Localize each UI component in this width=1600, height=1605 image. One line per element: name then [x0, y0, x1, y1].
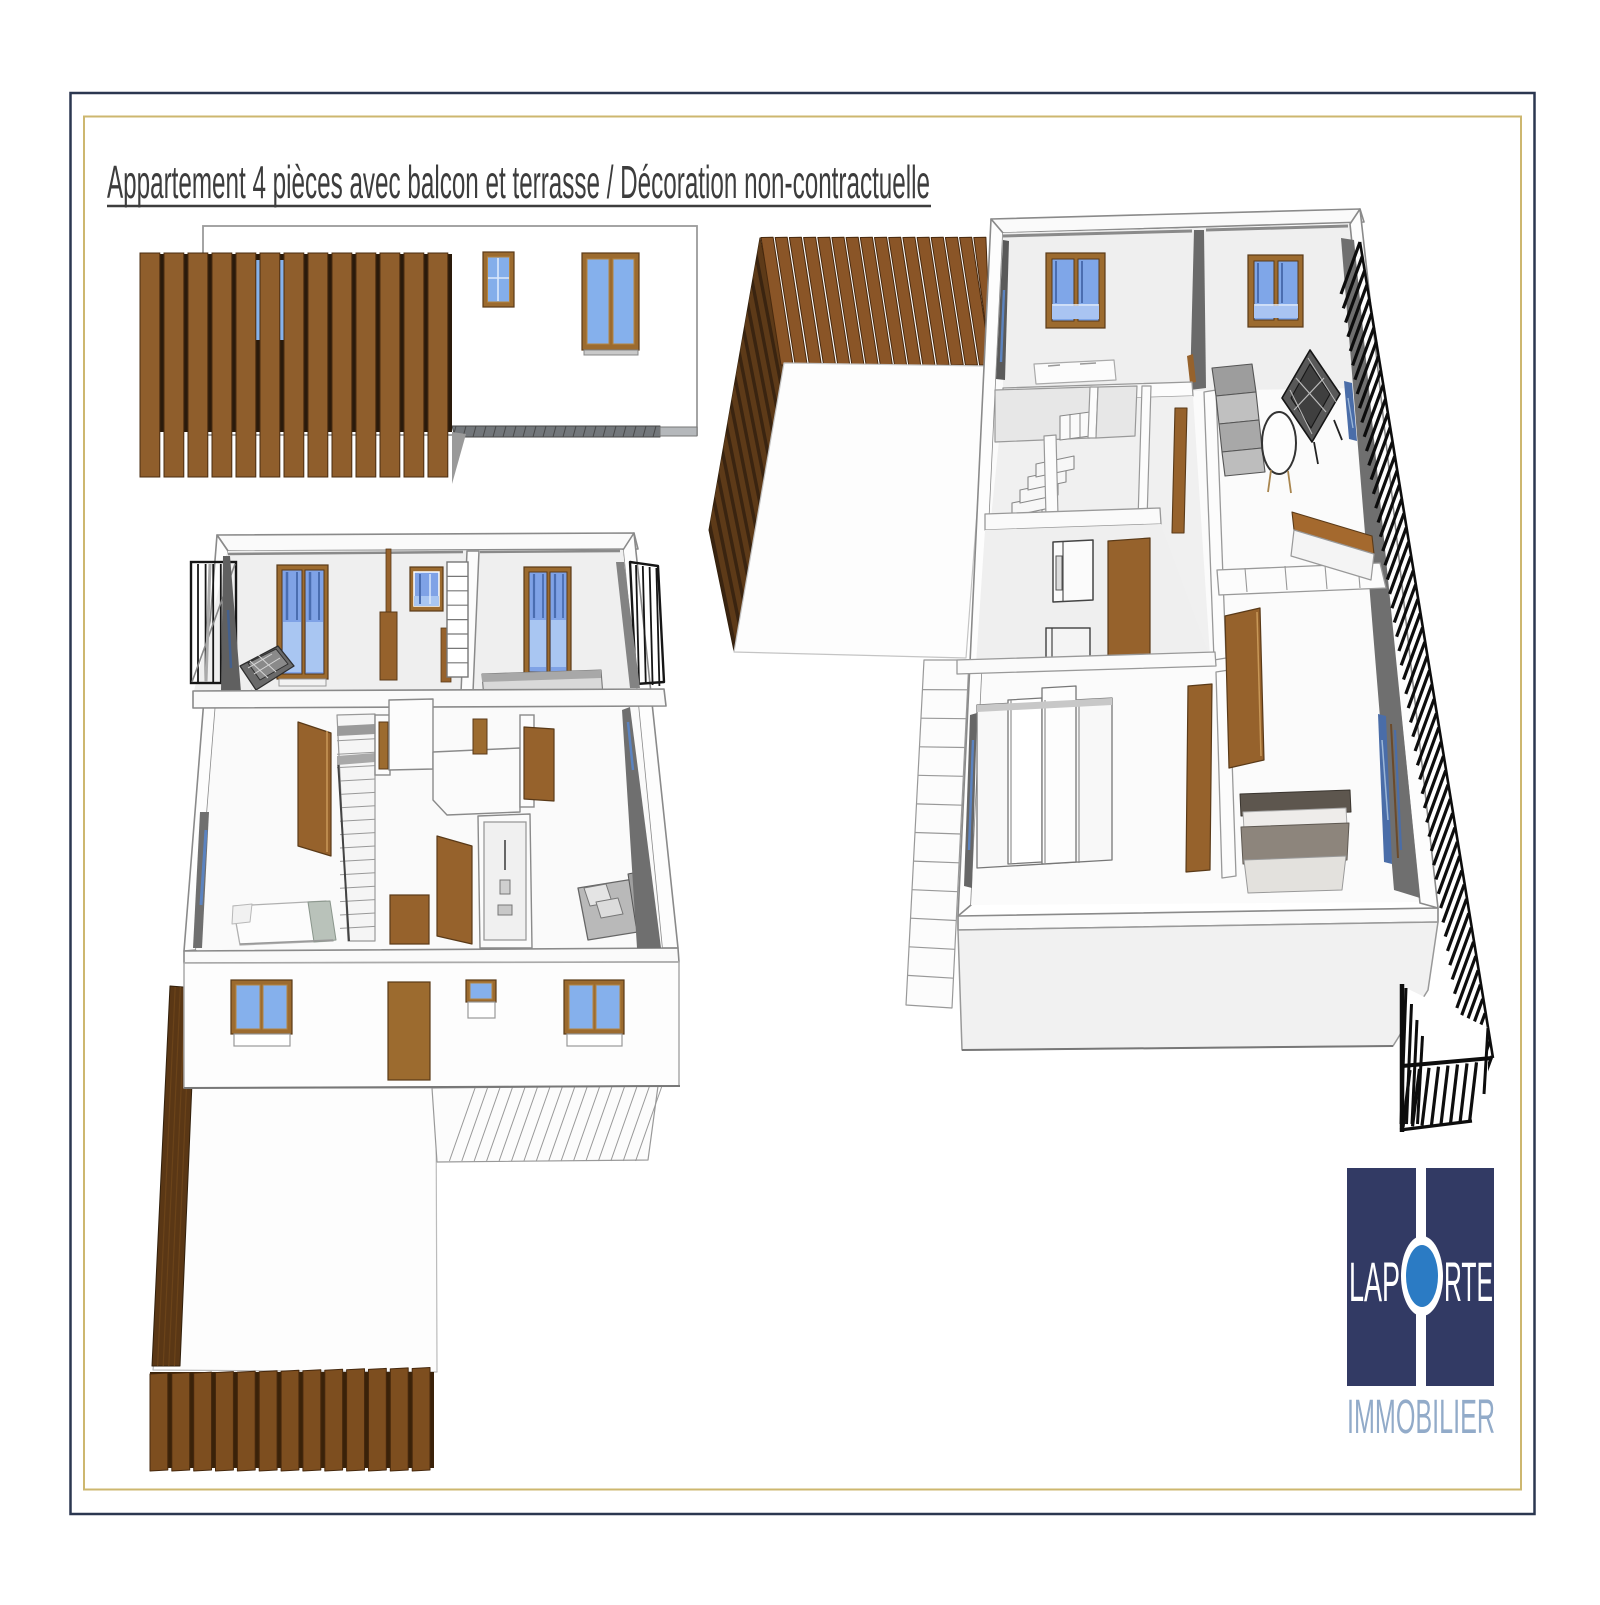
- svg-text:RTE: RTE: [1444, 1250, 1493, 1313]
- svg-text:Appartement 4 pièces avec balc: Appartement 4 pièces avec balcon et terr…: [107, 156, 930, 208]
- svg-text:LAP: LAP: [1349, 1250, 1400, 1313]
- svg-text:IMMOBILIER: IMMOBILIER: [1347, 1391, 1495, 1444]
